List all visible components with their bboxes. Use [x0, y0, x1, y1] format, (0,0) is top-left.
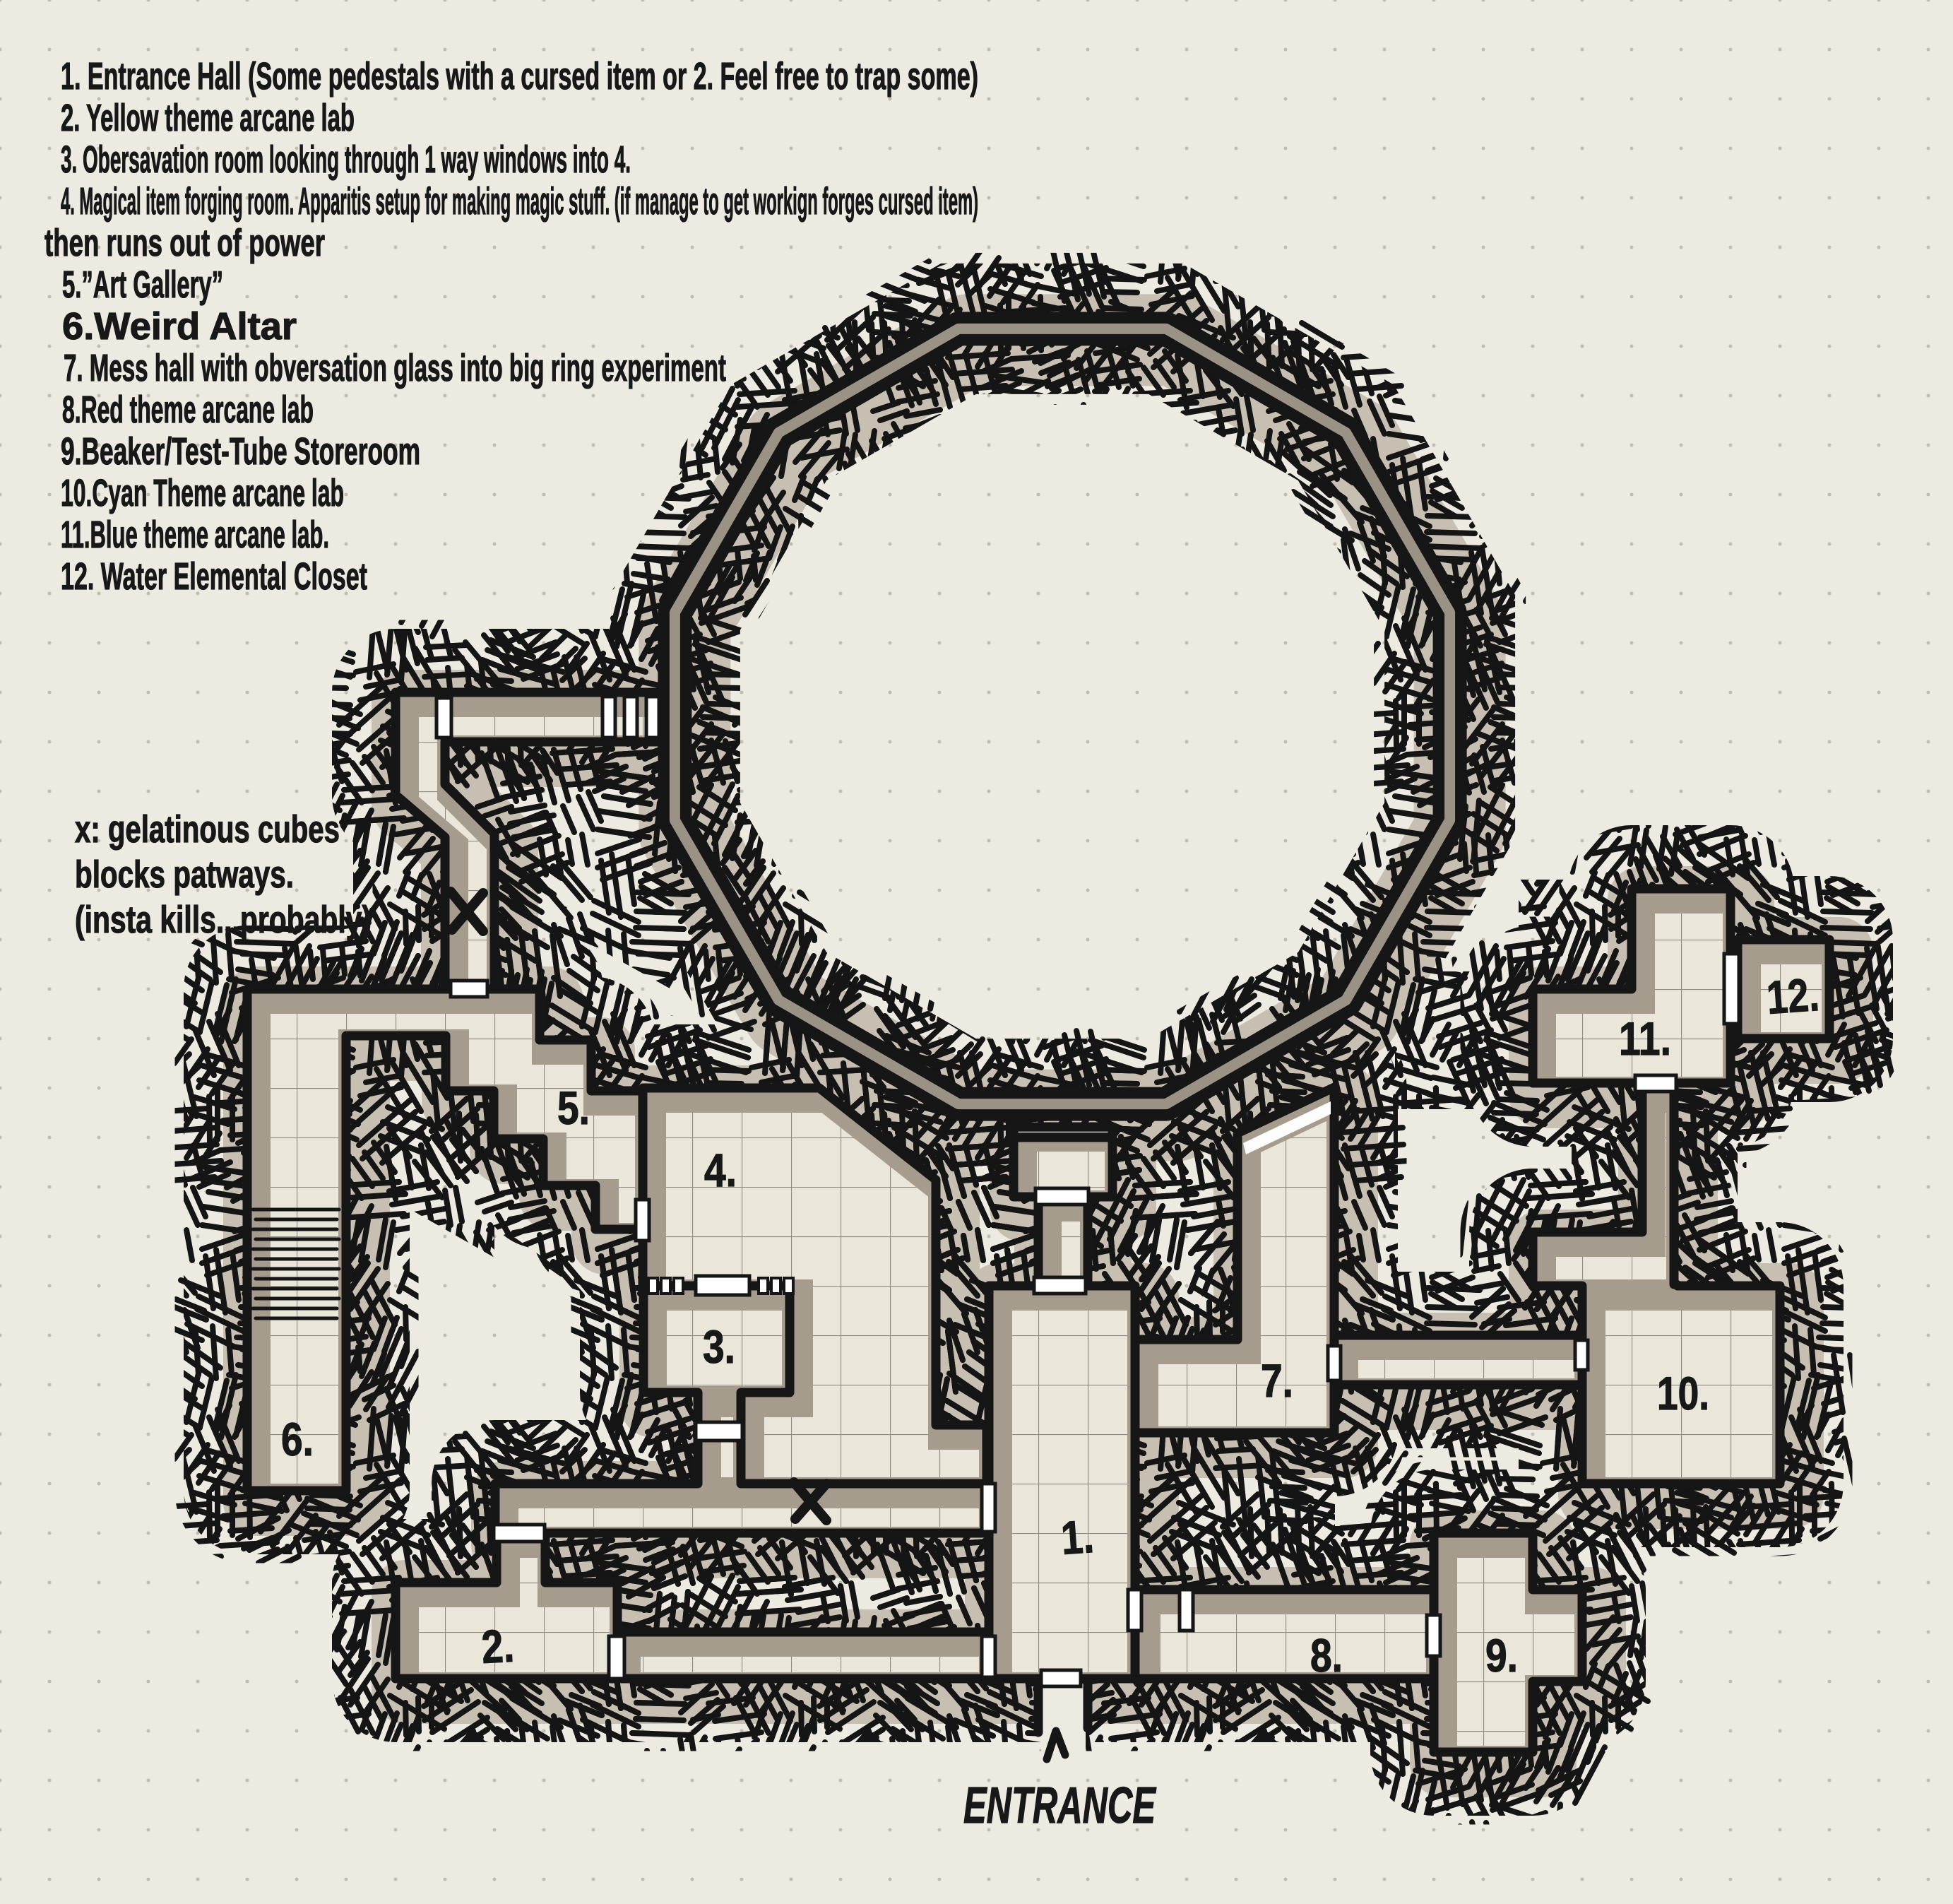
- svg-text:6.Weird Altar: 6.Weird Altar: [62, 305, 297, 348]
- svg-text:12. Water Elemental Closet: 12. Water Elemental Closet: [61, 555, 367, 598]
- svg-text:1.: 1.: [1059, 1510, 1096, 1564]
- svg-text:5.”Art Gallery”: 5.”Art Gallery”: [62, 264, 223, 306]
- svg-text:9.: 9.: [1485, 1629, 1518, 1681]
- svg-text:3. Obersavation room looking t: 3. Obersavation room looking through 1 w…: [61, 138, 631, 181]
- svg-text:then runs out of power: then runs out of power: [44, 222, 325, 264]
- svg-text:5.: 5.: [557, 1082, 590, 1134]
- svg-text:4. Magical item forging room.: 4. Magical item forging room. Apparitis …: [61, 180, 978, 223]
- svg-text:8.: 8.: [1310, 1629, 1343, 1681]
- svg-text:7. Mess hall with obversation: 7. Mess hall with obversation glass into…: [64, 347, 726, 389]
- svg-text:10.: 10.: [1657, 1367, 1709, 1419]
- svg-text:x: gelatinous cubes: x: gelatinous cubes: [75, 808, 340, 851]
- svg-text:2. Yellow theme arcane lab: 2. Yellow theme arcane lab: [61, 97, 355, 139]
- svg-text:blocks patways.: blocks patways.: [75, 853, 294, 896]
- svg-text:9.Beaker/Test-Tube Storeroom: 9.Beaker/Test-Tube Storeroom: [61, 430, 420, 473]
- svg-text:6.: 6.: [281, 1413, 314, 1465]
- svg-text:2.: 2.: [480, 1619, 516, 1673]
- svg-text:3.: 3.: [703, 1320, 735, 1373]
- svg-text:11.Blue theme arcane lab.: 11.Blue theme arcane lab.: [61, 514, 329, 556]
- svg-text:12.: 12.: [1765, 968, 1821, 1024]
- svg-text:7.: 7.: [1261, 1354, 1293, 1407]
- svg-text:8.Red theme arcane lab: 8.Red theme arcane lab: [62, 389, 314, 431]
- svg-text:ENTRANCE: ENTRANCE: [963, 1778, 1156, 1834]
- svg-text:10.Cyan Theme arcane lab: 10.Cyan Theme arcane lab: [61, 472, 344, 514]
- svg-text:11.: 11.: [1619, 1012, 1671, 1065]
- svg-text:(insta kills...probably): (insta kills...probably): [75, 899, 372, 941]
- svg-text:4.: 4.: [704, 1144, 737, 1196]
- svg-text:1. Entrance Hall (Some pedesta: 1. Entrance Hall (Some pedestals with a …: [61, 55, 978, 97]
